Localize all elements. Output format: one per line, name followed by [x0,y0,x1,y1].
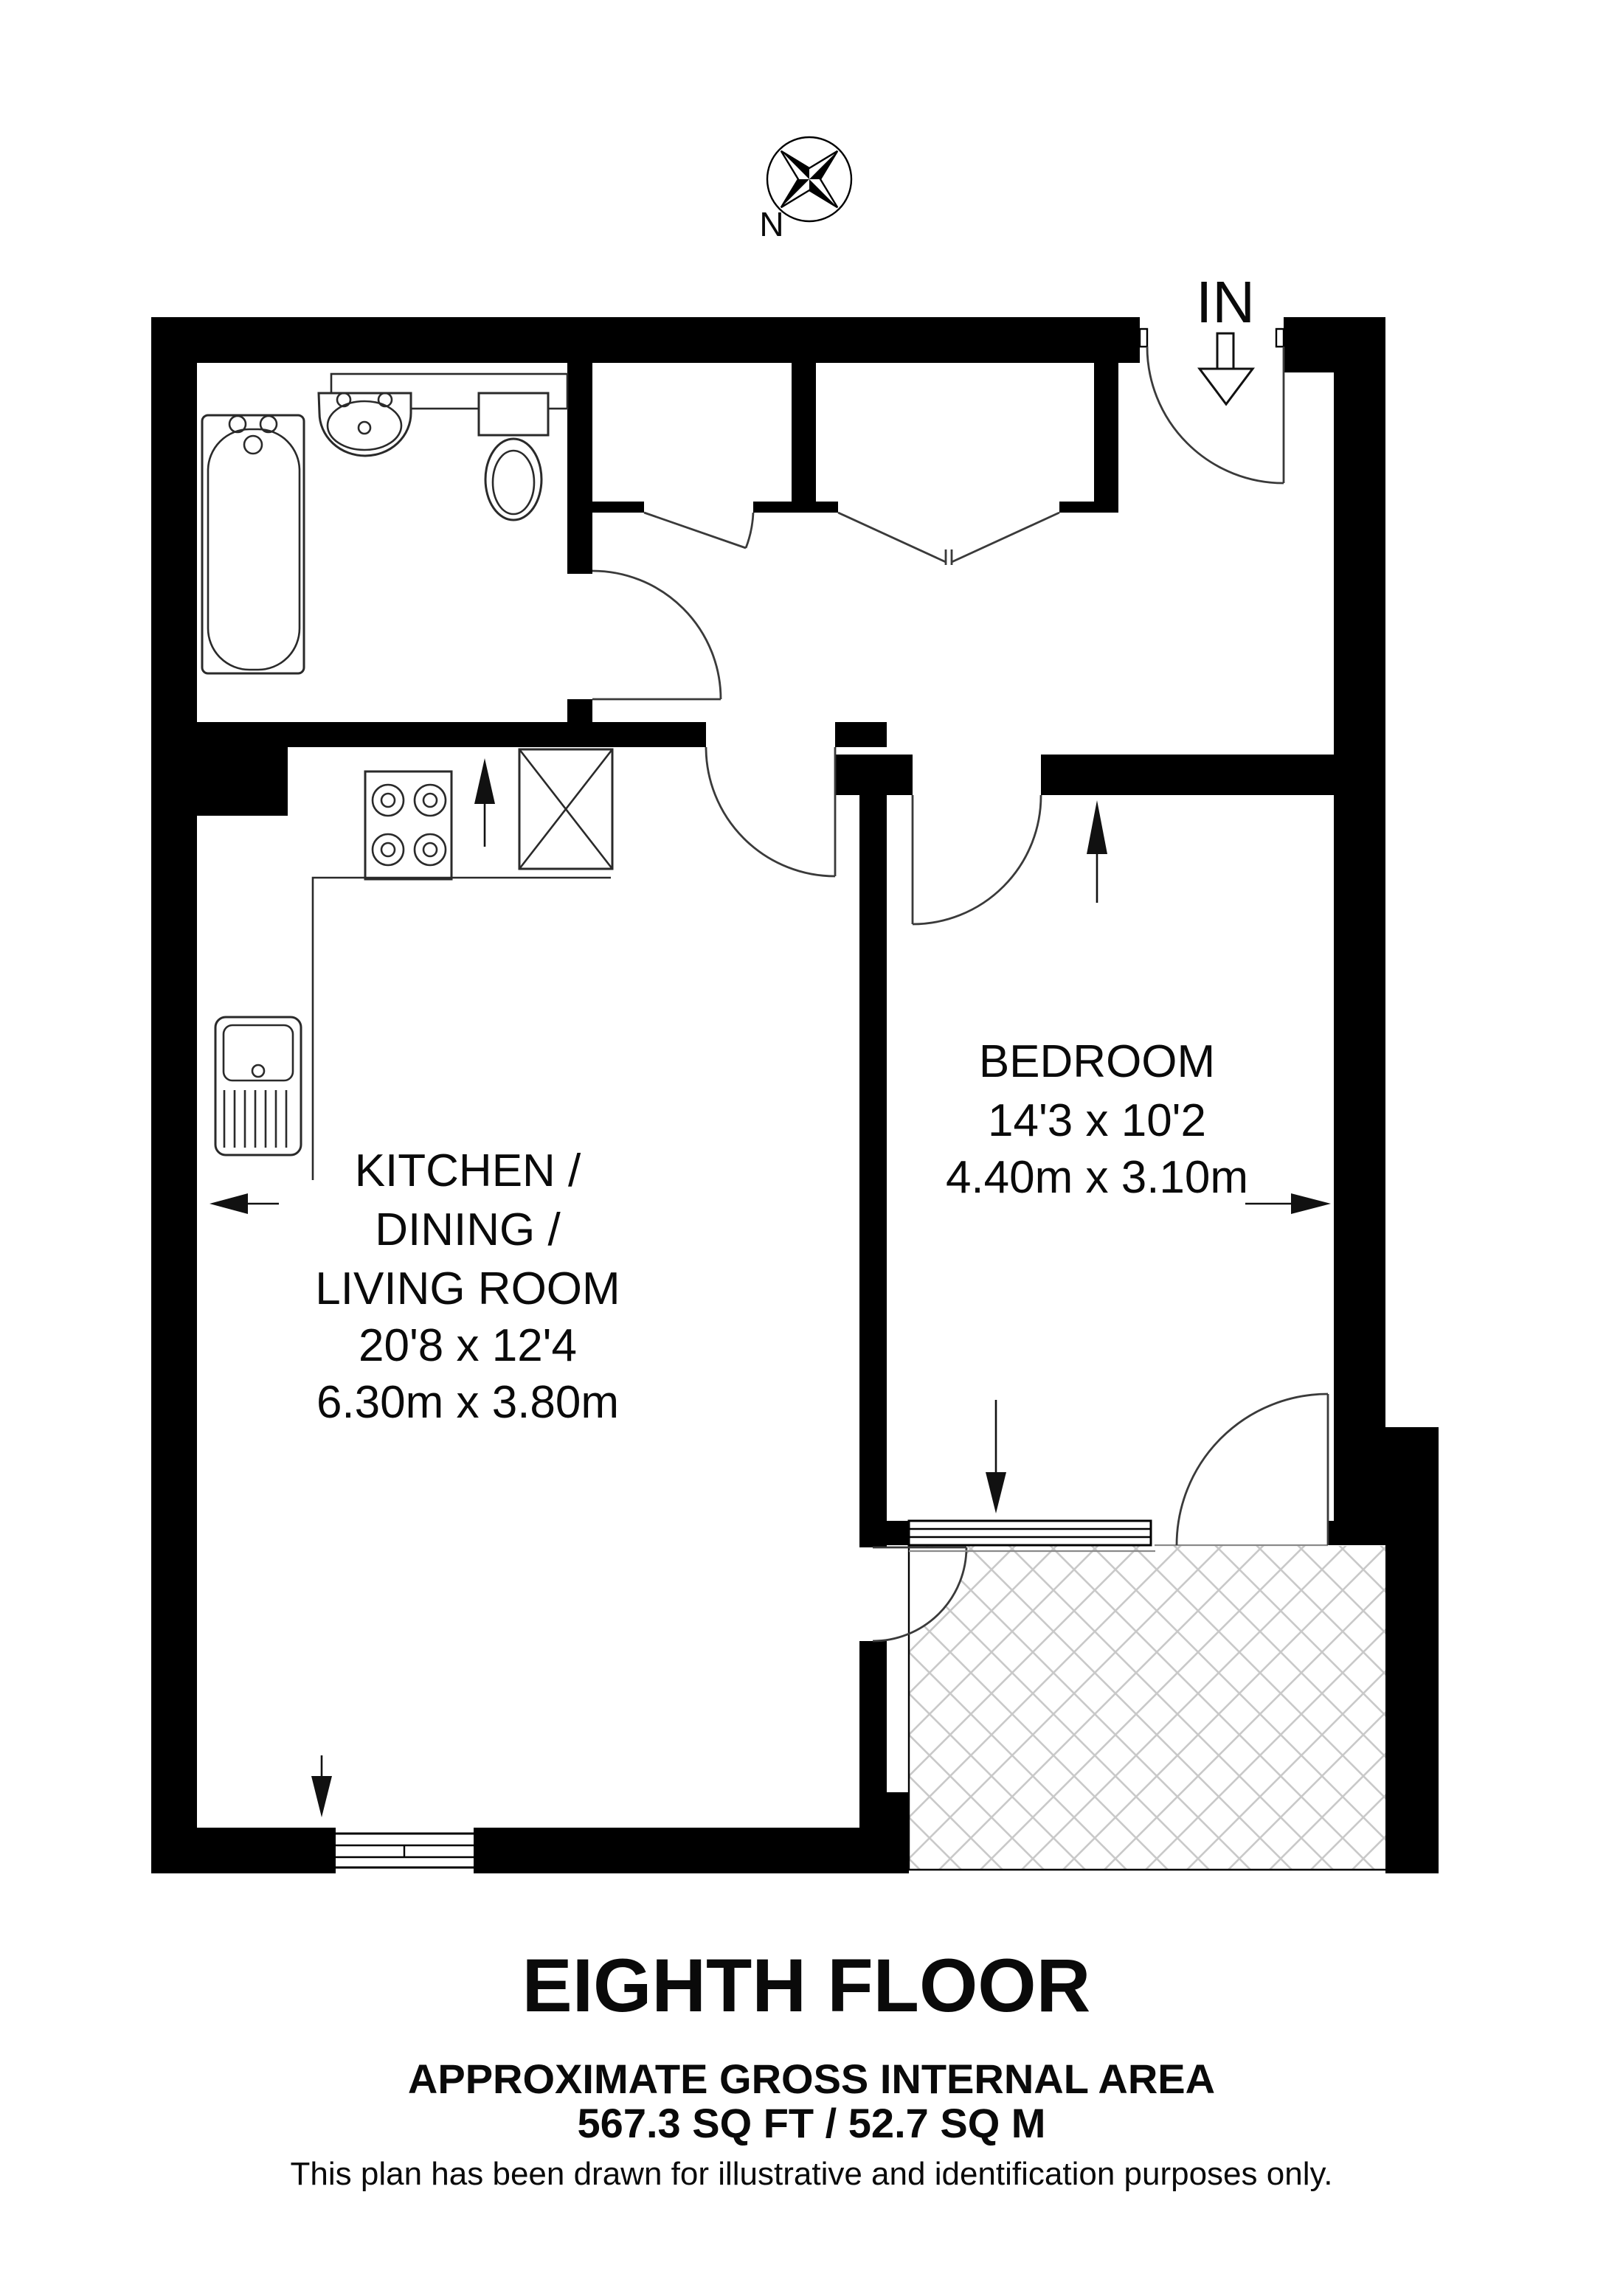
kitchen-dims-metric: 6.30m x 3.80m [316,1377,619,1428]
balcony-hatch-floor [909,1546,1385,1870]
toilet-icon [479,393,548,520]
wall-closet-front-stub3 [816,502,838,513]
kitchen-name-line2: DINING / [375,1204,561,1255]
bedroom-dims-metric: 4.40m x 3.10m [946,1152,1248,1203]
living-window-down-arrow-icon [311,1755,332,1817]
bathroom-fixtures [202,374,567,673]
kitchen-counter-edge [313,878,611,1180]
bedroom-label: BEDROOM 14'3 x 10'2 4.40m x 3.10m [946,1036,1248,1203]
entrance-arrow-icon [1200,333,1253,404]
wall-closet-front-stub1 [592,502,644,513]
kitchen-sink-icon [215,1017,301,1155]
wall-divider [859,795,887,1547]
footer-block: EIGHTH FLOOR APPROXIMATE GROSS INTERNAL … [291,1943,1333,2192]
living-room-window [331,1834,479,1867]
balcony [873,1545,1385,1870]
wall-balcony-right [1385,1427,1439,1873]
entrance-door [1140,329,1284,483]
wall-living-top-end [835,722,887,747]
bedroom-window-down-arrow-icon [986,1400,1006,1513]
floorplan-page: N IN [0,0,1623,2296]
kitchen-dims-imperial: 20'8 x 12'4 [359,1320,577,1371]
wall-closet-right [1094,363,1118,513]
entrance-in-label: IN [1196,269,1255,335]
wall-right [1334,372,1385,1545]
wall-bathroom-right [567,363,592,574]
wall-closet-divider [792,363,816,513]
wall-bedroom-top-left [835,755,913,795]
bedroom-door [913,795,1041,924]
compass-north-label: N [759,205,783,243]
bedroom-up-arrow-icon [1087,800,1107,903]
wall-bedroom-top-right [1041,755,1334,795]
wall-closet-front-stub4 [1059,502,1094,513]
area-heading: APPROXIMATE GROSS INTERNAL AREA [408,2056,1215,2102]
bathtub-icon [202,415,304,673]
living-room-door [706,747,835,876]
closet-left-door [644,513,753,548]
entrance-label-group: IN [1196,269,1255,404]
wall-top [151,317,1140,363]
kitchen-label: KITCHEN / DINING / LIVING ROOM 20'8 x 12… [315,1145,620,1428]
kitchen-up-arrow-icon [474,758,495,847]
wall-bedroom-south-jamb [1328,1521,1385,1545]
bathroom-door [592,571,721,699]
sink-icon [319,393,411,456]
area-value: 567.3 SQ FT / 52.7 SQ M [578,2100,1046,2146]
hob-stove-icon [365,771,451,879]
floor-plan-canvas: N IN [0,0,1623,2296]
floor-title: EIGHTH FLOOR [522,1943,1091,2028]
wall-bedroom-south-left [887,1521,909,1545]
wall-bottom-right [474,1828,909,1873]
disclaimer-text: This plan has been drawn for illustrativ… [291,2156,1333,2192]
closet-right-bifold-door [838,513,1059,565]
bedroom-dims-imperial: 14'3 x 10'2 [988,1095,1206,1146]
wall-closet-front-stub2 [753,502,792,513]
compass-rose-icon: N [759,137,851,243]
wall-kitchen-corner-column [197,722,288,816]
wall-bottom-left [151,1828,336,1873]
kitchen-name-line1: KITCHEN / [355,1145,581,1196]
bedroom-name: BEDROOM [979,1036,1215,1087]
bedroom-balcony-door [1177,1394,1328,1545]
wall-balcony-corner [859,1792,909,1873]
wall-top-right-block [1284,317,1385,372]
doors [592,329,1328,1641]
appliance-xbox-icon [519,749,612,869]
wall-left [151,317,197,1873]
wall-bathroom-door-stub [567,699,592,722]
bedroom-right-arrow-icon [1245,1193,1331,1214]
kitchen-name-line3: LIVING ROOM [315,1263,620,1314]
living-left-arrow-icon [210,1193,279,1214]
